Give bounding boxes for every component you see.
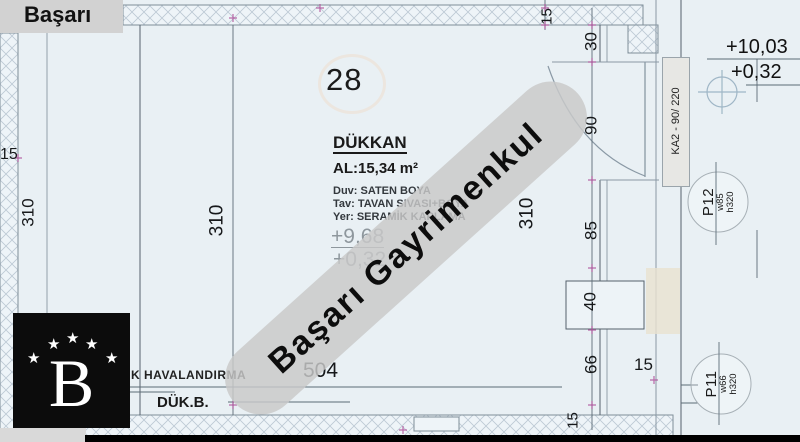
room-area: AL:15,34 m² (333, 161, 418, 176)
dim-15-left-wall: 15 (0, 147, 18, 163)
bottom-black-bar (85, 435, 800, 442)
window-height: h320 (729, 373, 739, 394)
dim-310-left-wall: 310 (20, 191, 37, 235)
brand-title: Başarı (24, 4, 91, 26)
door-tag: KA2 - 90/ 220 (666, 58, 686, 184)
window-height: h320 (726, 191, 736, 212)
window-id: P12 (701, 188, 716, 216)
dim-15-corridor: 15 (634, 356, 653, 373)
dim-30-right: 30 (583, 22, 600, 62)
window-width: w85 (716, 193, 726, 210)
window-tag-p11: P11 w66 h320 (700, 362, 742, 406)
room-name: DÜKKAN (333, 134, 407, 154)
room-number: 28 (326, 64, 362, 95)
dim-85-right: 85 (583, 211, 600, 251)
floorplan-screenshot: Başarı 28 DÜKKAN AL:15,34 m² Duv: SATEN … (0, 0, 800, 442)
window-tag-p12: P12 w85 h320 (697, 180, 739, 224)
bottom-left-strip (0, 428, 86, 442)
shop-entry-label: DÜK.B. (157, 395, 209, 410)
dim-310-mid: 310 (208, 199, 227, 243)
logo-letter: B (13, 349, 130, 417)
window-width: w66 (719, 375, 729, 392)
dim-310-right: 310 (518, 192, 537, 236)
dim-40-shaft: 40 (582, 282, 599, 322)
window-id: P11 (704, 370, 719, 397)
elevation-right-lower: +0,32 (731, 62, 782, 82)
dim-15-top-wall: 15 (540, 2, 555, 32)
dim-66-right: 66 (583, 345, 600, 385)
elevation-right-upper: +10,03 (726, 37, 788, 57)
company-logo: ★ ★ ★ ★ ★ B (13, 313, 130, 428)
shaft-boxes (414, 268, 680, 431)
